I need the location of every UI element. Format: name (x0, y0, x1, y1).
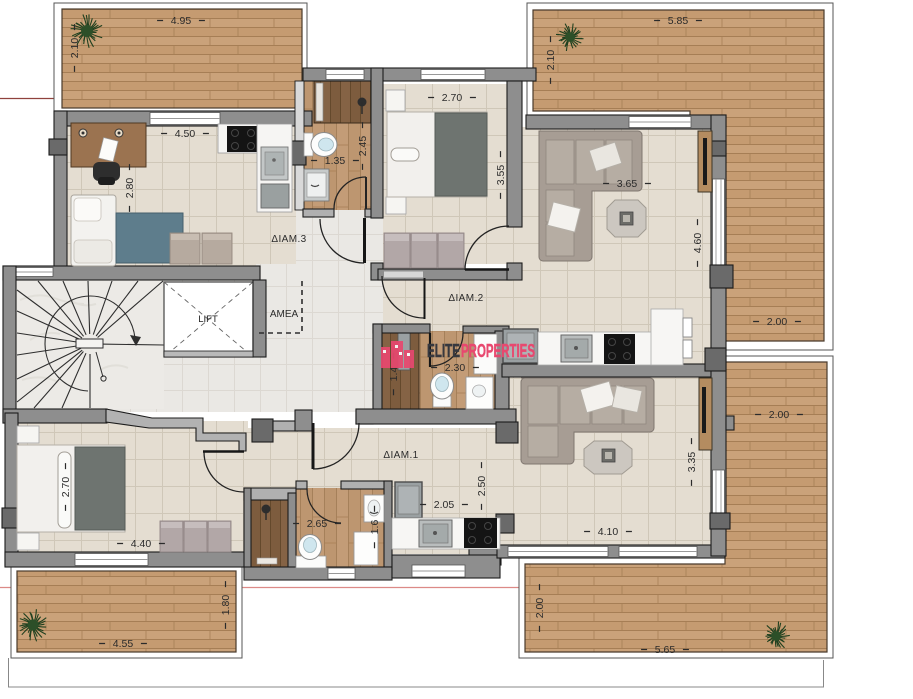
svg-text:LIFT: LIFT (198, 314, 218, 325)
svg-text:2.80: 2.80 (124, 178, 136, 199)
svg-text:4.10: 4.10 (598, 526, 619, 538)
svg-text:ΔIAM.2: ΔIAM.2 (448, 293, 483, 304)
svg-text:2.10: 2.10 (69, 38, 81, 59)
svg-text:1.6: 1.6 (369, 520, 381, 535)
svg-text:2.10: 2.10 (545, 50, 557, 71)
svg-text:4.60: 4.60 (692, 233, 704, 254)
svg-text:AMEA: AMEA (270, 309, 299, 320)
svg-text:1.35: 1.35 (325, 155, 346, 167)
svg-text:2.00: 2.00 (767, 316, 788, 328)
svg-text:1.4: 1.4 (388, 367, 400, 382)
svg-text:2.65: 2.65 (307, 518, 328, 530)
svg-text:2.50: 2.50 (476, 476, 488, 497)
svg-text:2.70: 2.70 (442, 92, 463, 104)
svg-text:3.55: 3.55 (495, 165, 507, 186)
svg-text:4.40: 4.40 (131, 538, 152, 550)
svg-text:1.80: 1.80 (220, 595, 232, 616)
svg-text:ΔIAM.3: ΔIAM.3 (271, 234, 306, 245)
svg-text:4.95: 4.95 (171, 15, 192, 27)
svg-text:ΔIAM.1: ΔIAM.1 (383, 450, 418, 461)
svg-text:2.45: 2.45 (357, 136, 369, 157)
svg-text:PROPERTIES: PROPERTIES (461, 341, 535, 361)
svg-text:4.50: 4.50 (175, 128, 196, 140)
svg-text:ELITE: ELITE (427, 341, 460, 361)
svg-text:5.85: 5.85 (668, 15, 689, 27)
svg-text:5.65: 5.65 (655, 644, 676, 656)
svg-text:3.35: 3.35 (686, 452, 698, 473)
svg-text:2.00: 2.00 (534, 598, 546, 619)
svg-text:2.05: 2.05 (434, 499, 455, 511)
svg-text:2.00: 2.00 (769, 409, 790, 421)
svg-text:4.55: 4.55 (113, 638, 134, 650)
svg-text:3.65: 3.65 (617, 178, 638, 190)
svg-text:2.30: 2.30 (445, 362, 466, 374)
svg-text:2.70: 2.70 (60, 477, 72, 498)
